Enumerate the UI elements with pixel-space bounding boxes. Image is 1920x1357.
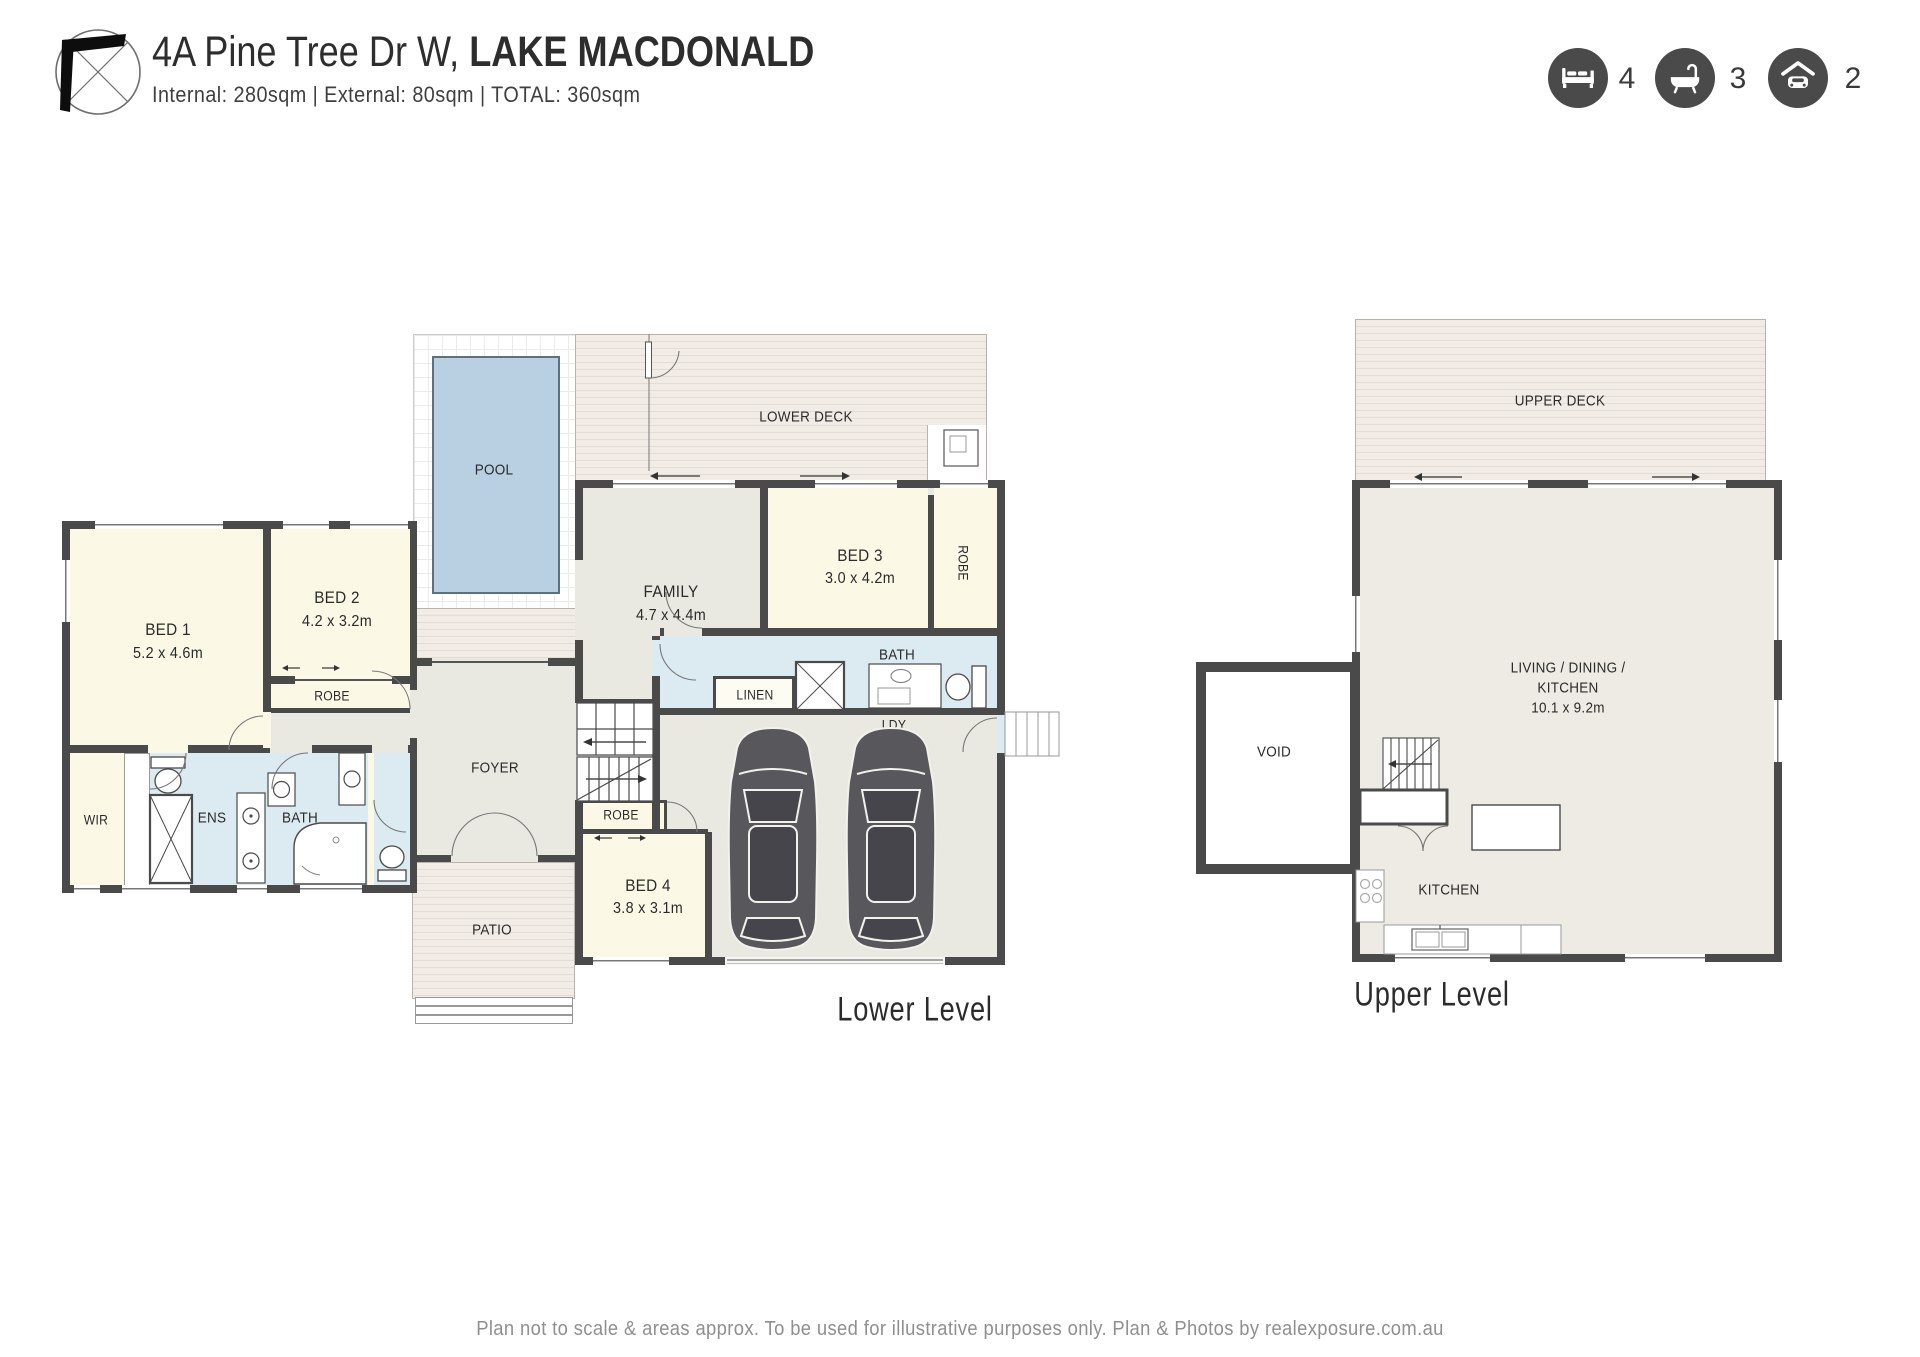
patio-step xyxy=(415,1015,573,1024)
label-upper-deck: UPPER DECK xyxy=(1515,393,1605,410)
window xyxy=(1774,560,1782,640)
door-opening xyxy=(410,690,417,738)
hallway xyxy=(271,713,410,745)
label-bed2-dim: 4.2 x 3.2m xyxy=(302,613,372,631)
agency-logo xyxy=(40,14,152,126)
label-bed1: BED 1 xyxy=(145,620,191,640)
room-bath-upper xyxy=(660,636,997,708)
window xyxy=(1774,700,1782,762)
label-kitchen: KITCHEN xyxy=(1418,882,1479,899)
opening xyxy=(575,560,583,640)
window xyxy=(815,480,897,488)
label-ens: ENS xyxy=(198,810,227,827)
wall xyxy=(410,658,432,666)
label-pool: POOL xyxy=(475,462,514,479)
label-wir: WIR xyxy=(84,813,108,828)
window xyxy=(1352,596,1360,652)
label-bed4: BED 4 xyxy=(625,876,671,896)
area-summary: Internal: 280sqm | External: 80sqm | TOT… xyxy=(152,82,640,108)
label-family-dim: 4.7 x 4.4m xyxy=(636,607,706,625)
label-bed2: BED 2 xyxy=(314,588,360,608)
window xyxy=(74,885,100,893)
external-stairs xyxy=(1005,712,1059,756)
page-title: 4A Pine Tree Dr W, LAKE MACDONALD xyxy=(152,28,814,77)
door-opening xyxy=(372,745,408,753)
lower-level-title: Lower Level xyxy=(837,991,992,1030)
wall xyxy=(392,676,417,684)
door-opening xyxy=(270,745,312,753)
window xyxy=(593,957,669,965)
label-ldy: LDY xyxy=(882,718,906,733)
upper-interior xyxy=(1352,480,1782,962)
label-bed3: BED 3 xyxy=(837,546,883,566)
door-opening xyxy=(148,745,188,753)
door-opening xyxy=(263,712,271,748)
upper-level-title: Upper Level xyxy=(1354,976,1509,1015)
window xyxy=(95,521,223,529)
window xyxy=(1395,954,1490,962)
car-icon xyxy=(1768,48,1828,108)
address-suburb: LAKE MACDONALD xyxy=(469,28,814,76)
wall xyxy=(575,829,708,834)
label-foyer: FOYER xyxy=(471,760,519,777)
label-bed4-dim: 3.8 x 3.1m xyxy=(613,900,683,918)
label-void: VOID xyxy=(1257,744,1291,761)
label-living-2: KITCHEN xyxy=(1537,680,1598,697)
bath-icon xyxy=(1655,48,1715,108)
window xyxy=(300,885,362,893)
void xyxy=(1196,662,1360,874)
label-bath-upper: BATH xyxy=(879,647,915,664)
wall xyxy=(62,745,417,753)
window xyxy=(62,560,70,622)
patio-step xyxy=(415,997,573,1006)
patio-step xyxy=(415,1006,573,1015)
sliding-door xyxy=(613,480,735,488)
door-opening xyxy=(664,628,702,636)
car-count: 2 xyxy=(1845,62,1862,96)
door-opening xyxy=(652,640,660,676)
label-lower-deck: LOWER DECK xyxy=(759,409,852,426)
window xyxy=(350,521,408,529)
label-patio: PATIO xyxy=(472,922,512,939)
room-wc xyxy=(374,753,410,885)
label-family: FAMILY xyxy=(644,582,699,602)
foyer-window xyxy=(432,661,548,663)
window xyxy=(1625,954,1705,962)
door-opening xyxy=(997,715,1005,753)
label-linen: LINEN xyxy=(736,688,773,703)
bed-count: 4 xyxy=(1619,62,1636,96)
wall xyxy=(660,628,997,636)
wardrobe-strip xyxy=(124,753,150,887)
label-bath-main: BATH xyxy=(282,810,318,827)
address-street: 4A Pine Tree Dr W, xyxy=(152,28,459,76)
wall xyxy=(928,495,934,628)
window xyxy=(940,480,988,488)
label-bed1-dim: 5.2 x 4.6m xyxy=(133,645,203,663)
bed-icon xyxy=(1548,48,1608,108)
wall xyxy=(1352,868,1360,962)
label-robe-stairs: ROBE xyxy=(603,808,639,823)
wall xyxy=(271,676,295,684)
stairs-opening xyxy=(575,703,583,800)
pool-steps-deck xyxy=(413,608,577,660)
sliding-door xyxy=(1588,480,1726,488)
label-living-dim: 10.1 x 9.2m xyxy=(1531,700,1605,717)
wall xyxy=(271,708,417,713)
window xyxy=(283,521,329,529)
window xyxy=(237,885,267,893)
bath-count: 3 xyxy=(1730,62,1747,96)
sliding-door xyxy=(1390,480,1528,488)
label-fridge: F xyxy=(1537,932,1545,947)
floorplan-page: 4A Pine Tree Dr W, LAKE MACDONALD Intern… xyxy=(0,0,1920,1357)
wall xyxy=(705,832,712,957)
disclaimer: Plan not to scale & areas approx. To be … xyxy=(77,1318,1843,1341)
wall xyxy=(660,708,997,715)
wall xyxy=(760,488,768,636)
wall xyxy=(577,699,655,703)
label-robe-bed3: ROBE xyxy=(956,545,971,581)
deck-nook xyxy=(927,425,986,486)
entry-door-opening xyxy=(451,855,538,862)
label-bed3-dim: 3.0 x 4.2m xyxy=(825,570,895,588)
robe-sliding-door xyxy=(295,679,392,681)
wall xyxy=(548,658,575,666)
garage-door xyxy=(725,957,945,965)
label-robe-bed2: ROBE xyxy=(314,689,350,704)
window xyxy=(122,885,190,893)
label-living-1: LIVING / DINING / xyxy=(1511,660,1626,677)
